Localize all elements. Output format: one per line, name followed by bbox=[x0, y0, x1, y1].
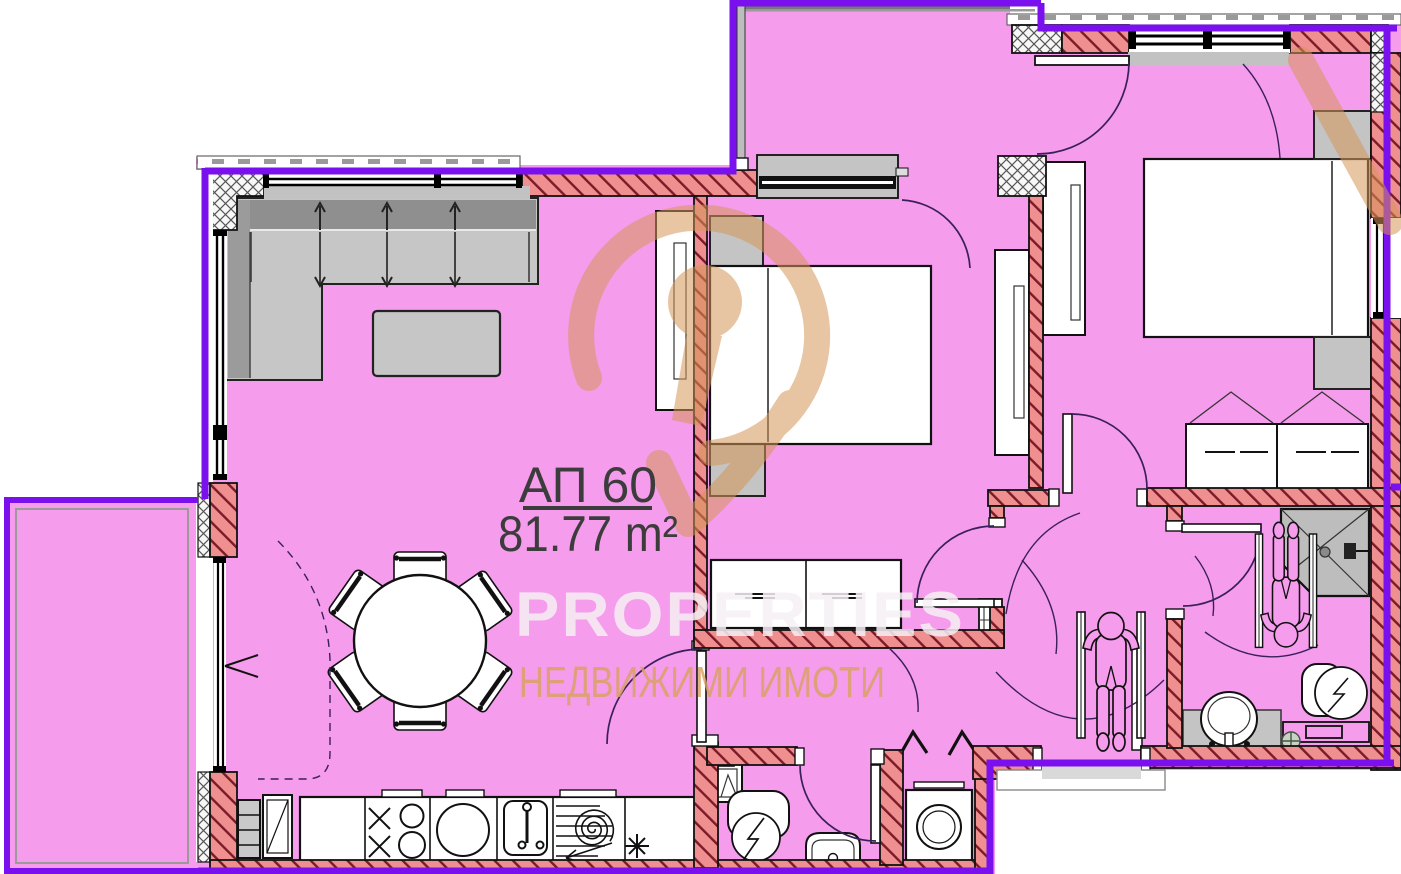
svg-text:81.77 m²: 81.77 m² bbox=[498, 506, 678, 562]
svg-text:НЕДВИЖИМИ ИМОТИ: НЕДВИЖИМИ ИМОТИ bbox=[519, 658, 885, 707]
svg-text:АП 60: АП 60 bbox=[519, 457, 657, 513]
svg-text:PROPERTIES: PROPERTIES bbox=[515, 580, 965, 650]
